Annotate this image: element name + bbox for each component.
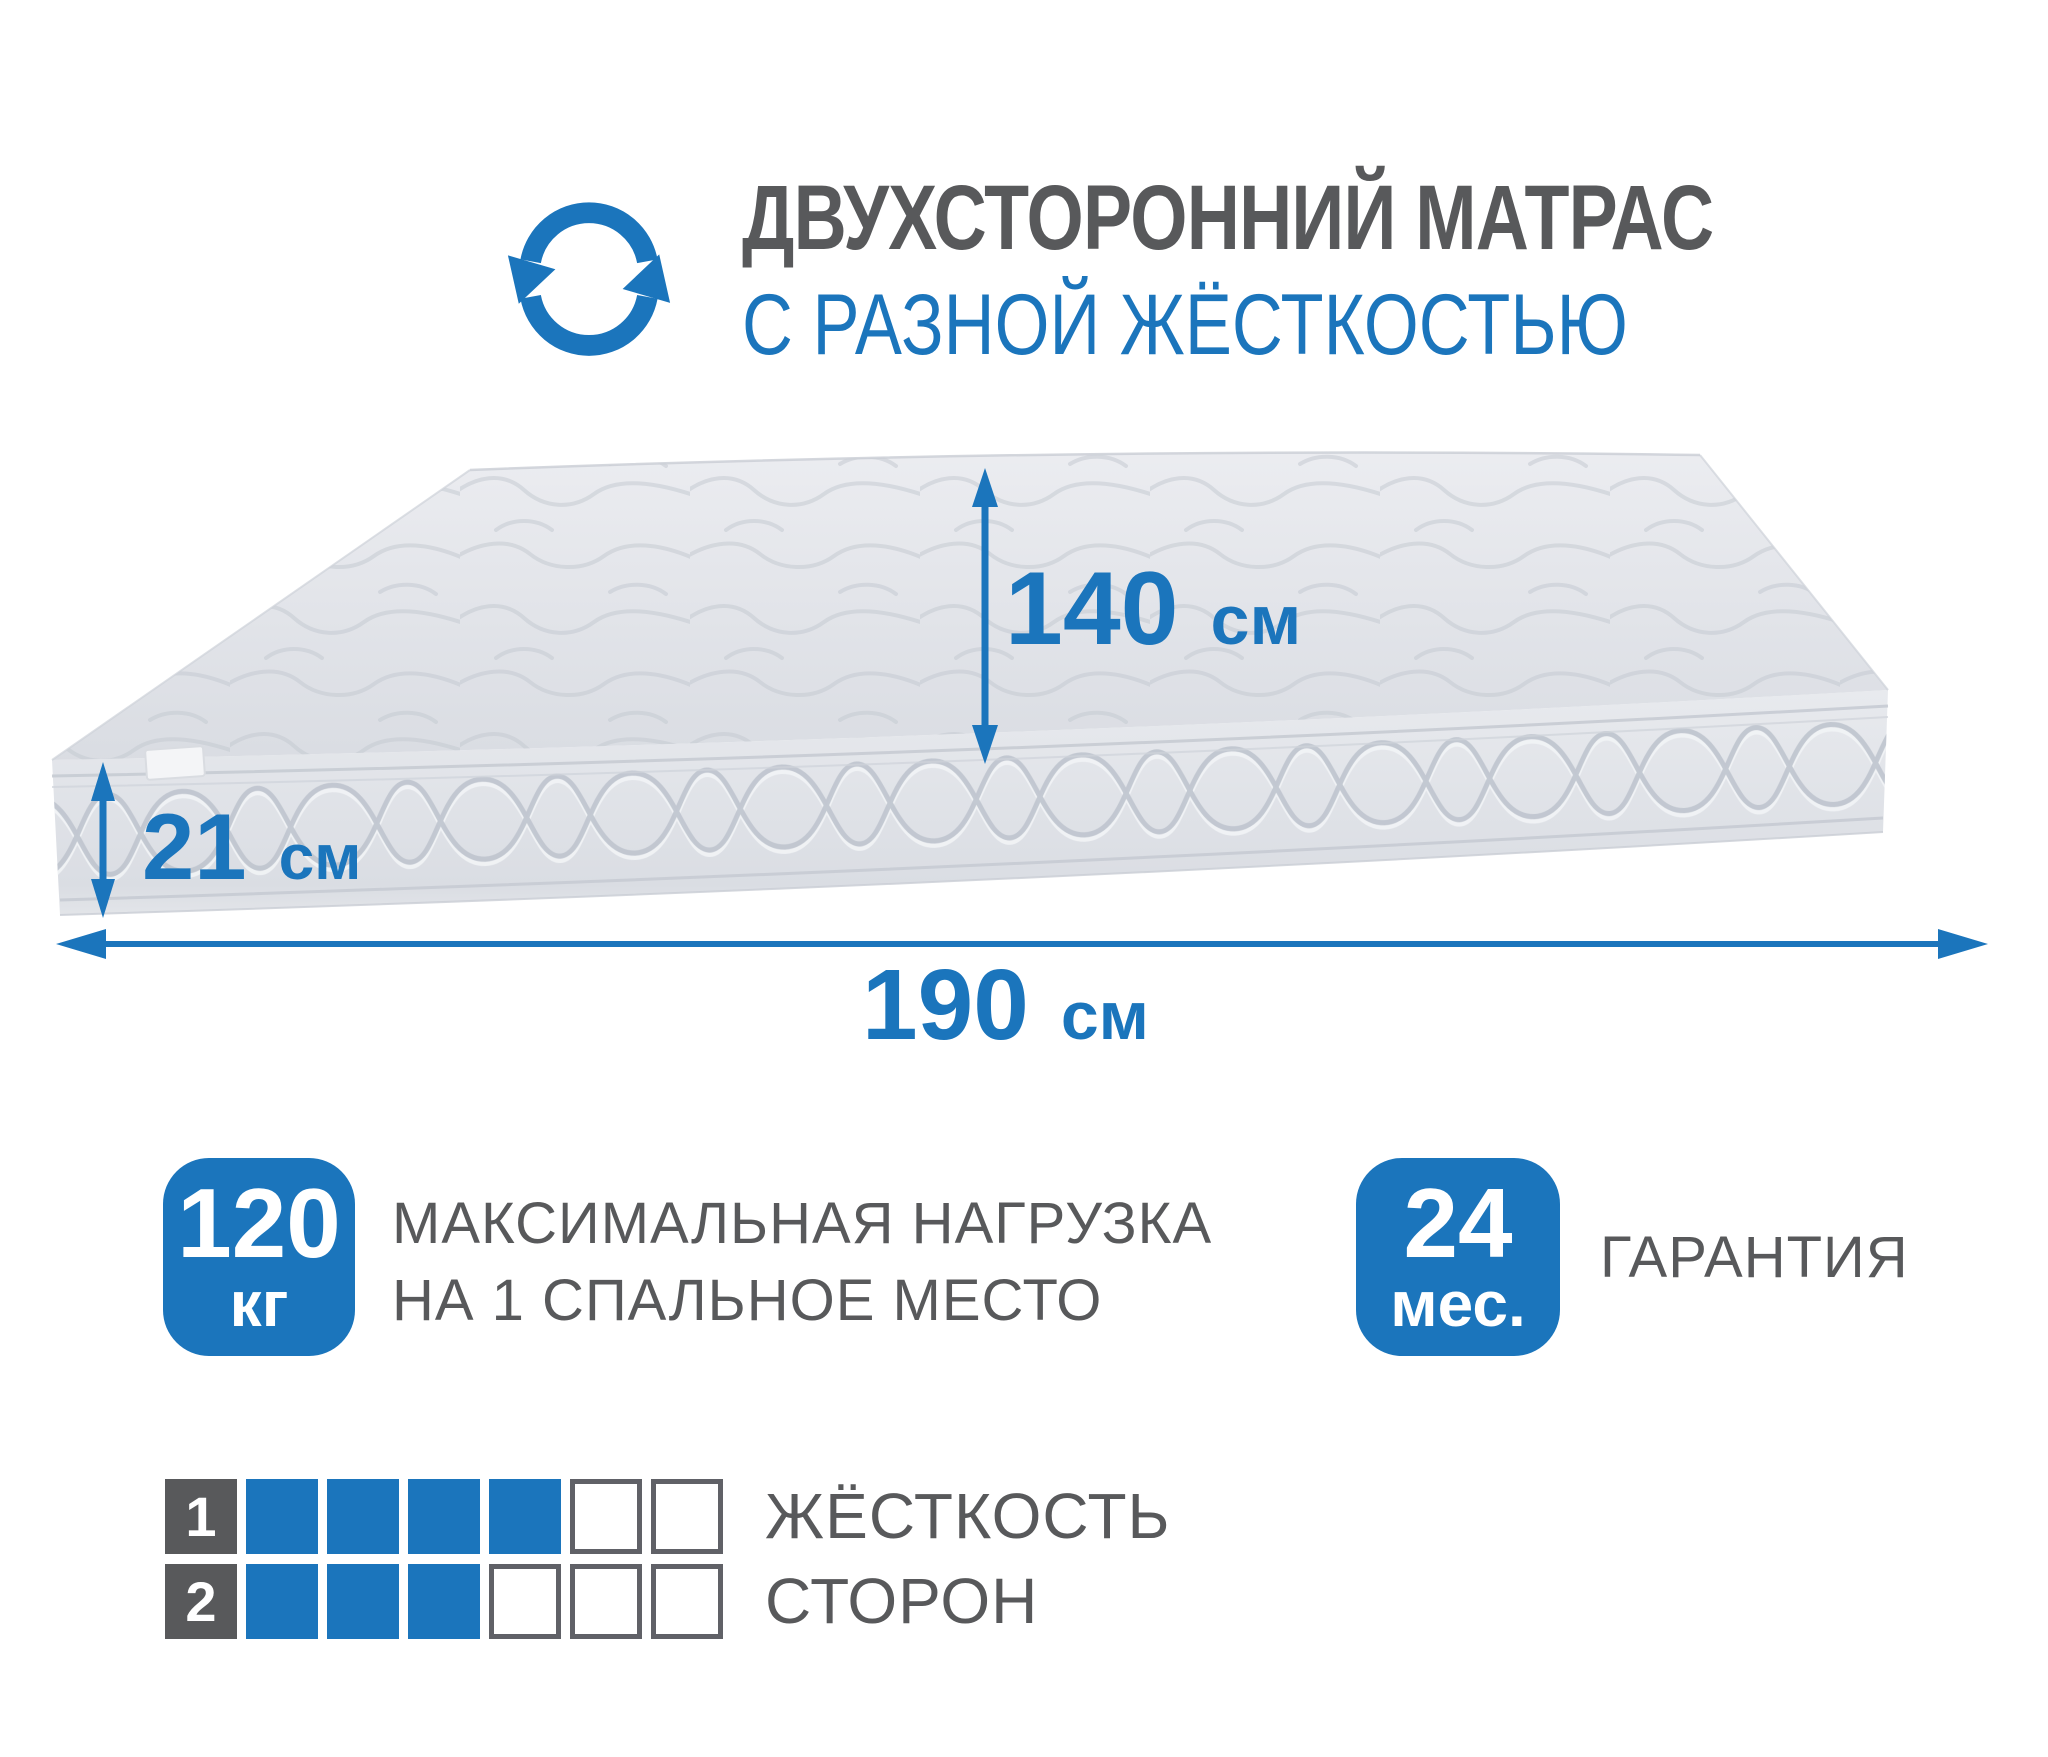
- max-load-label-line2: НА 1 СПАЛЬНОЕ МЕСТО: [392, 1262, 1212, 1339]
- max-load-badge: 120 кг: [163, 1158, 355, 1356]
- firmness-cell: [489, 1479, 561, 1554]
- dimension-length-label: 190 см: [862, 948, 1149, 1063]
- height-value: 21: [142, 793, 247, 901]
- length-value: 190: [862, 948, 1029, 1063]
- mattress-tag: [145, 746, 205, 780]
- firmness-cell: [327, 1564, 399, 1639]
- max-load-value: 120: [177, 1175, 341, 1271]
- firmness-cell: [246, 1564, 318, 1639]
- firmness-label-line1: ЖЁСТКОСТЬ: [765, 1479, 1171, 1554]
- mattress-infographic: ДВУХСТОРОННИЙ МАТРАС С РАЗНОЙ ЖЁСТКОСТЬЮ: [0, 0, 2048, 1757]
- firmness-cell: [651, 1564, 723, 1639]
- dimension-width-label: 140 см: [1005, 550, 1301, 669]
- width-unit: см: [1211, 580, 1302, 660]
- warranty-badge: 24 мес.: [1356, 1158, 1560, 1356]
- firmness-cell: [408, 1564, 480, 1639]
- max-load-label-line1: МАКСИМАЛЬНАЯ НАГРУЗКА: [392, 1185, 1212, 1262]
- firmness-cell: [570, 1479, 642, 1554]
- warranty-value: 24: [1403, 1175, 1512, 1271]
- firmness-cell: [327, 1479, 399, 1554]
- firmness-side-number: 2: [165, 1564, 237, 1639]
- firmness-cell: [651, 1479, 723, 1554]
- dimension-height-label: 21 см: [142, 793, 362, 901]
- warranty-unit: мес.: [1390, 1271, 1525, 1338]
- firmness-cell: [246, 1479, 318, 1554]
- max-load-label: МАКСИМАЛЬНАЯ НАГРУЗКА НА 1 СПАЛЬНОЕ МЕСТ…: [392, 1185, 1212, 1339]
- height-unit: см: [279, 820, 362, 894]
- firmness-cell: [489, 1564, 561, 1639]
- max-load-unit: кг: [230, 1271, 289, 1338]
- firmness-row-side2: 2: [165, 1564, 723, 1639]
- warranty-label-line1: ГАРАНТИЯ: [1600, 1219, 1909, 1296]
- warranty-label: ГАРАНТИЯ: [1600, 1219, 1909, 1296]
- firmness-row-side1: 1: [165, 1479, 723, 1554]
- firmness-side-number: 1: [165, 1479, 237, 1554]
- width-value: 140: [1005, 550, 1179, 669]
- length-unit: см: [1061, 977, 1149, 1055]
- firmness-label-line2: СТОРОН: [765, 1564, 1038, 1639]
- firmness-cell: [408, 1479, 480, 1554]
- firmness-cell: [570, 1564, 642, 1639]
